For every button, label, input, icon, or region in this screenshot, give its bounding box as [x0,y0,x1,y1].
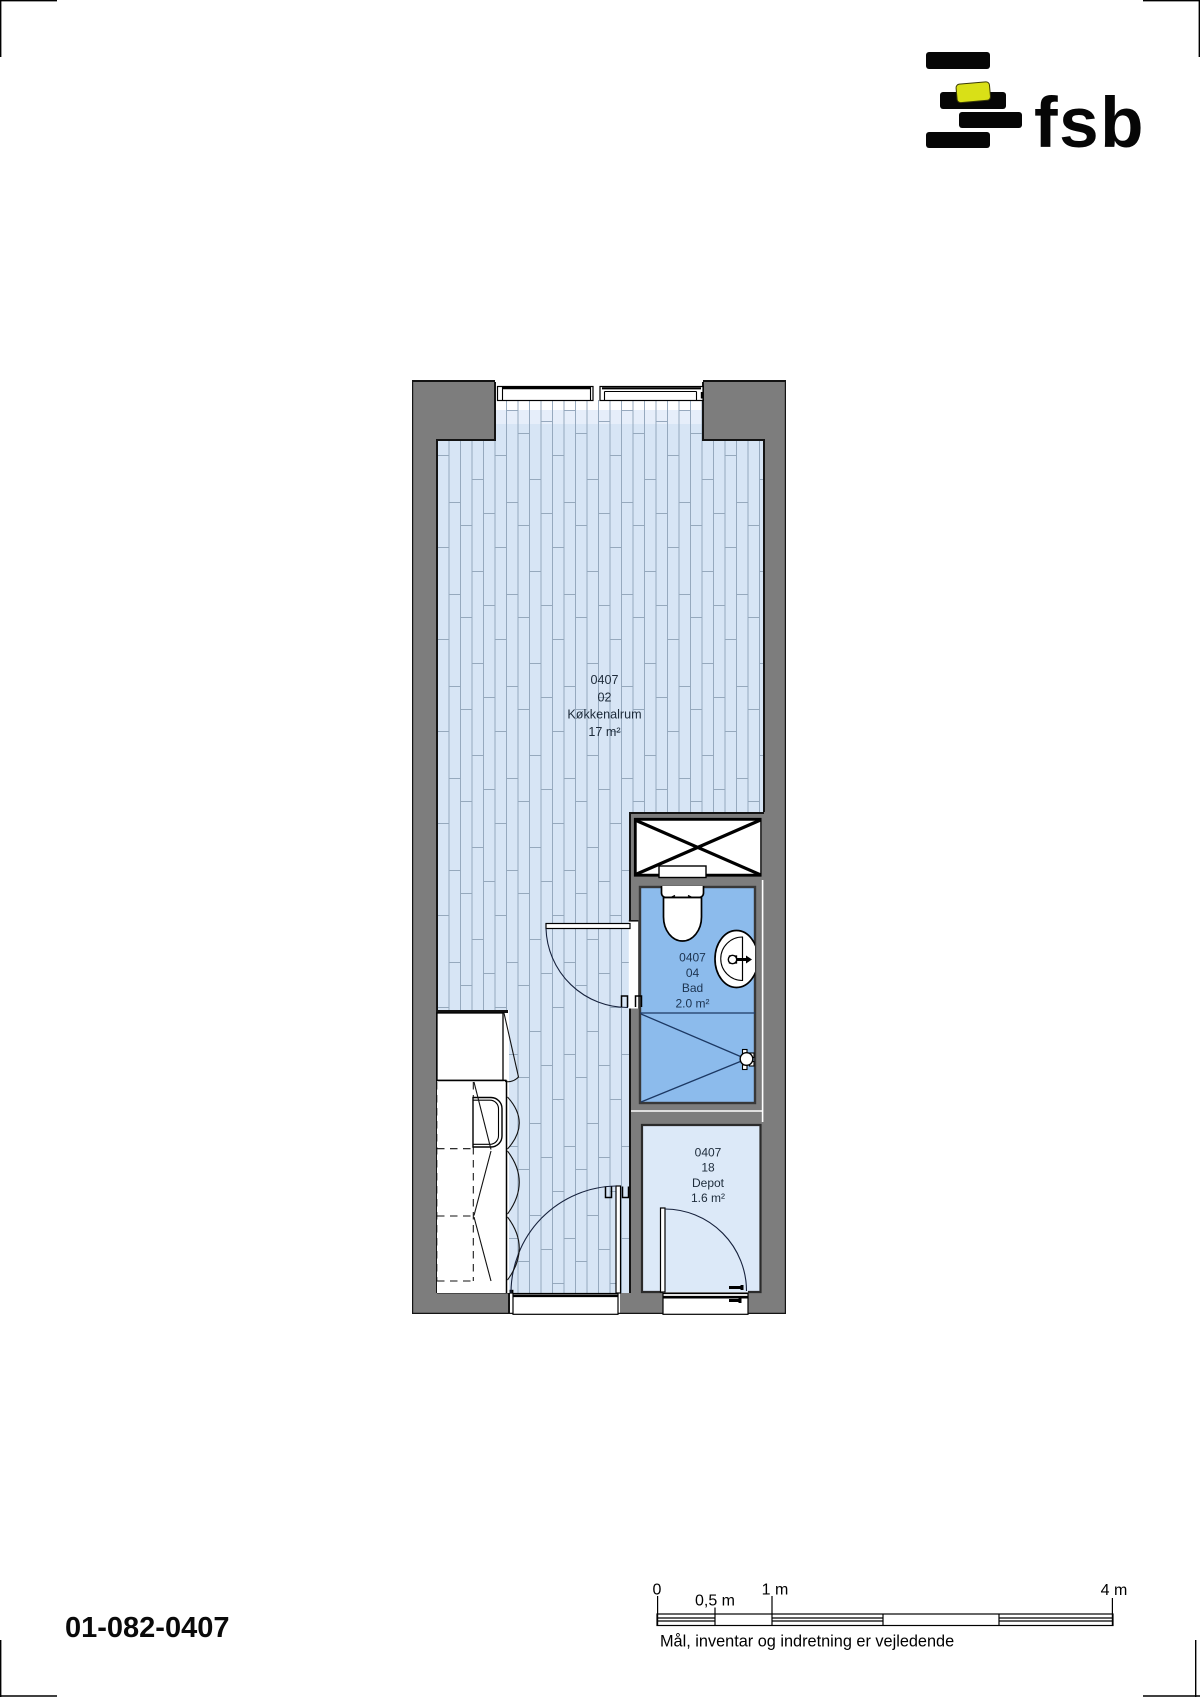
svg-text:0: 0 [653,1582,662,1599]
svg-text:17 m²: 17 m² [588,725,620,739]
svg-text:2.0 m²: 2.0 m² [675,996,709,1010]
svg-text:02: 02 [597,690,611,704]
svg-text:0407: 0407 [679,951,706,965]
svg-text:Køkkenalrum: Køkkenalrum [567,708,641,722]
svg-text:Bad: Bad [682,981,703,995]
svg-text:0407: 0407 [695,1145,722,1159]
svg-text:Depot: Depot [692,1176,725,1190]
svg-text:Mål, inventar og indretning er: Mål, inventar og indretning er vejledend… [660,1633,954,1651]
svg-text:1 m: 1 m [762,1582,789,1599]
svg-text:4 m: 4 m [1101,1582,1128,1599]
svg-text:0407: 0407 [590,673,618,687]
svg-text:04: 04 [686,966,700,980]
svg-text:01-082-0407: 01-082-0407 [65,1612,229,1644]
svg-text:1.6 m²: 1.6 m² [691,1191,725,1205]
svg-text:fsb: fsb [1034,84,1145,163]
svg-text:0,5 m: 0,5 m [695,1593,735,1610]
svg-text:18: 18 [701,1161,715,1175]
